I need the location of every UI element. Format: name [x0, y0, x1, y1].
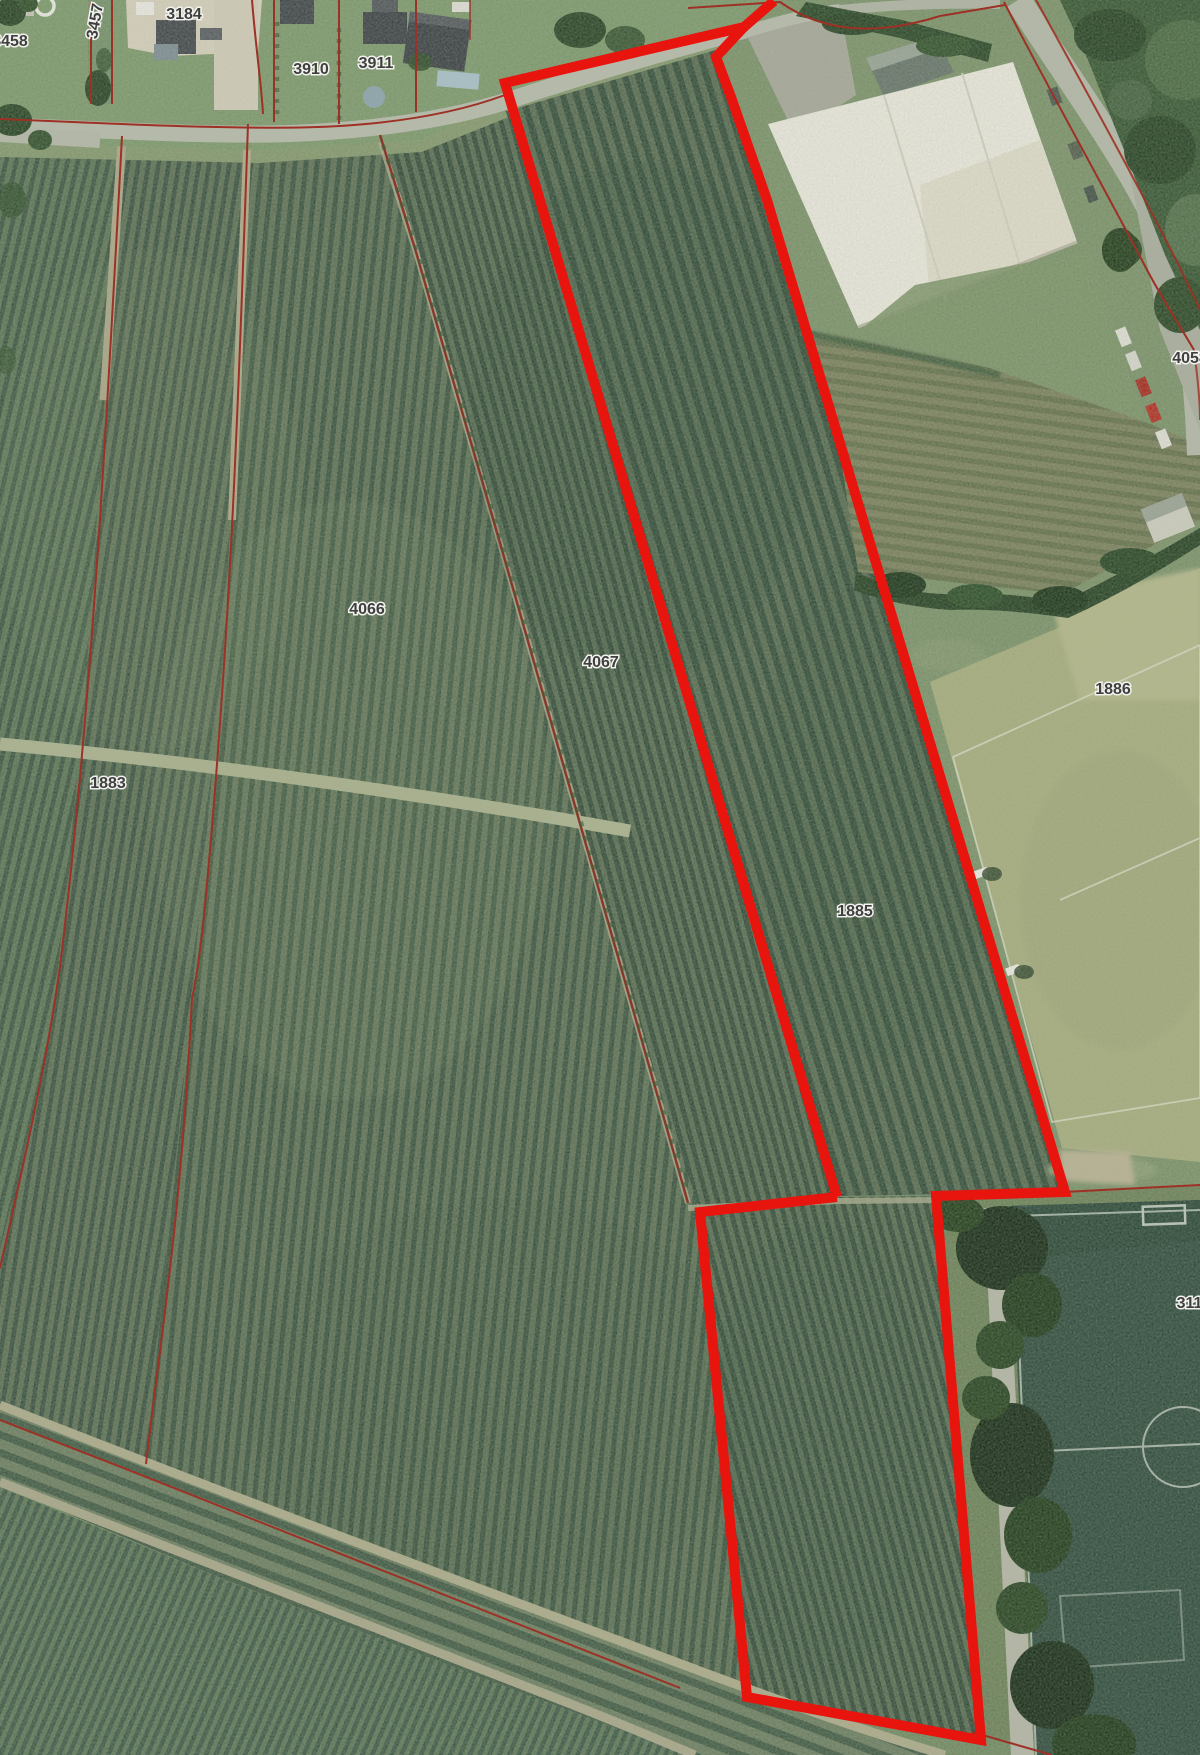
svg-text:3118: 3118: [1177, 1295, 1200, 1312]
svg-text:3911: 3911: [359, 55, 394, 72]
svg-text:3184: 3184: [166, 6, 202, 23]
svg-text:1885: 1885: [837, 903, 873, 920]
svg-text:3910: 3910: [293, 61, 329, 78]
svg-text:4067: 4067: [583, 654, 619, 671]
svg-text:1886: 1886: [1095, 681, 1131, 698]
svg-text:8458: 8458: [0, 33, 28, 50]
svg-text:1883: 1883: [90, 775, 126, 792]
svg-text:4058: 4058: [1172, 350, 1200, 367]
svg-text:4066: 4066: [349, 601, 385, 618]
